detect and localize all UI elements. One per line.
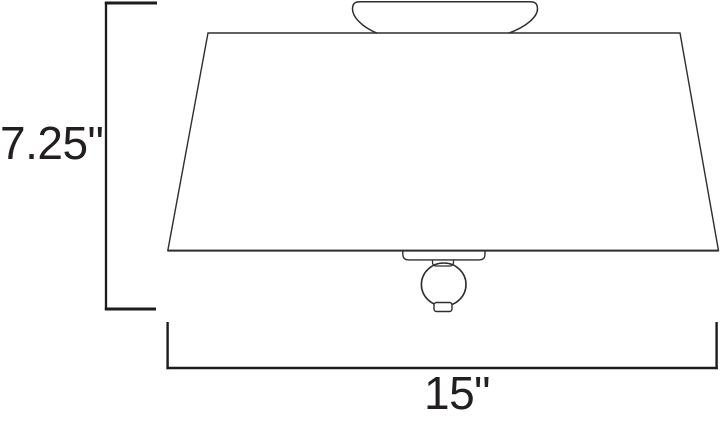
shade-outline <box>168 33 719 251</box>
finial-knob-outline <box>434 303 452 312</box>
width-dimension-lines <box>166 322 717 369</box>
socket-cup-outline <box>403 251 485 260</box>
ball-finial-outline <box>421 263 466 306</box>
height-dimension-label: 7.25" <box>0 120 101 166</box>
fixture-line-drawing <box>0 0 720 424</box>
diagram-canvas: 7.25" 15" <box>0 0 720 424</box>
width-dimension-label: 15" <box>390 370 524 416</box>
height-dimension-lines <box>105 2 157 310</box>
canopy-outline <box>353 2 538 33</box>
